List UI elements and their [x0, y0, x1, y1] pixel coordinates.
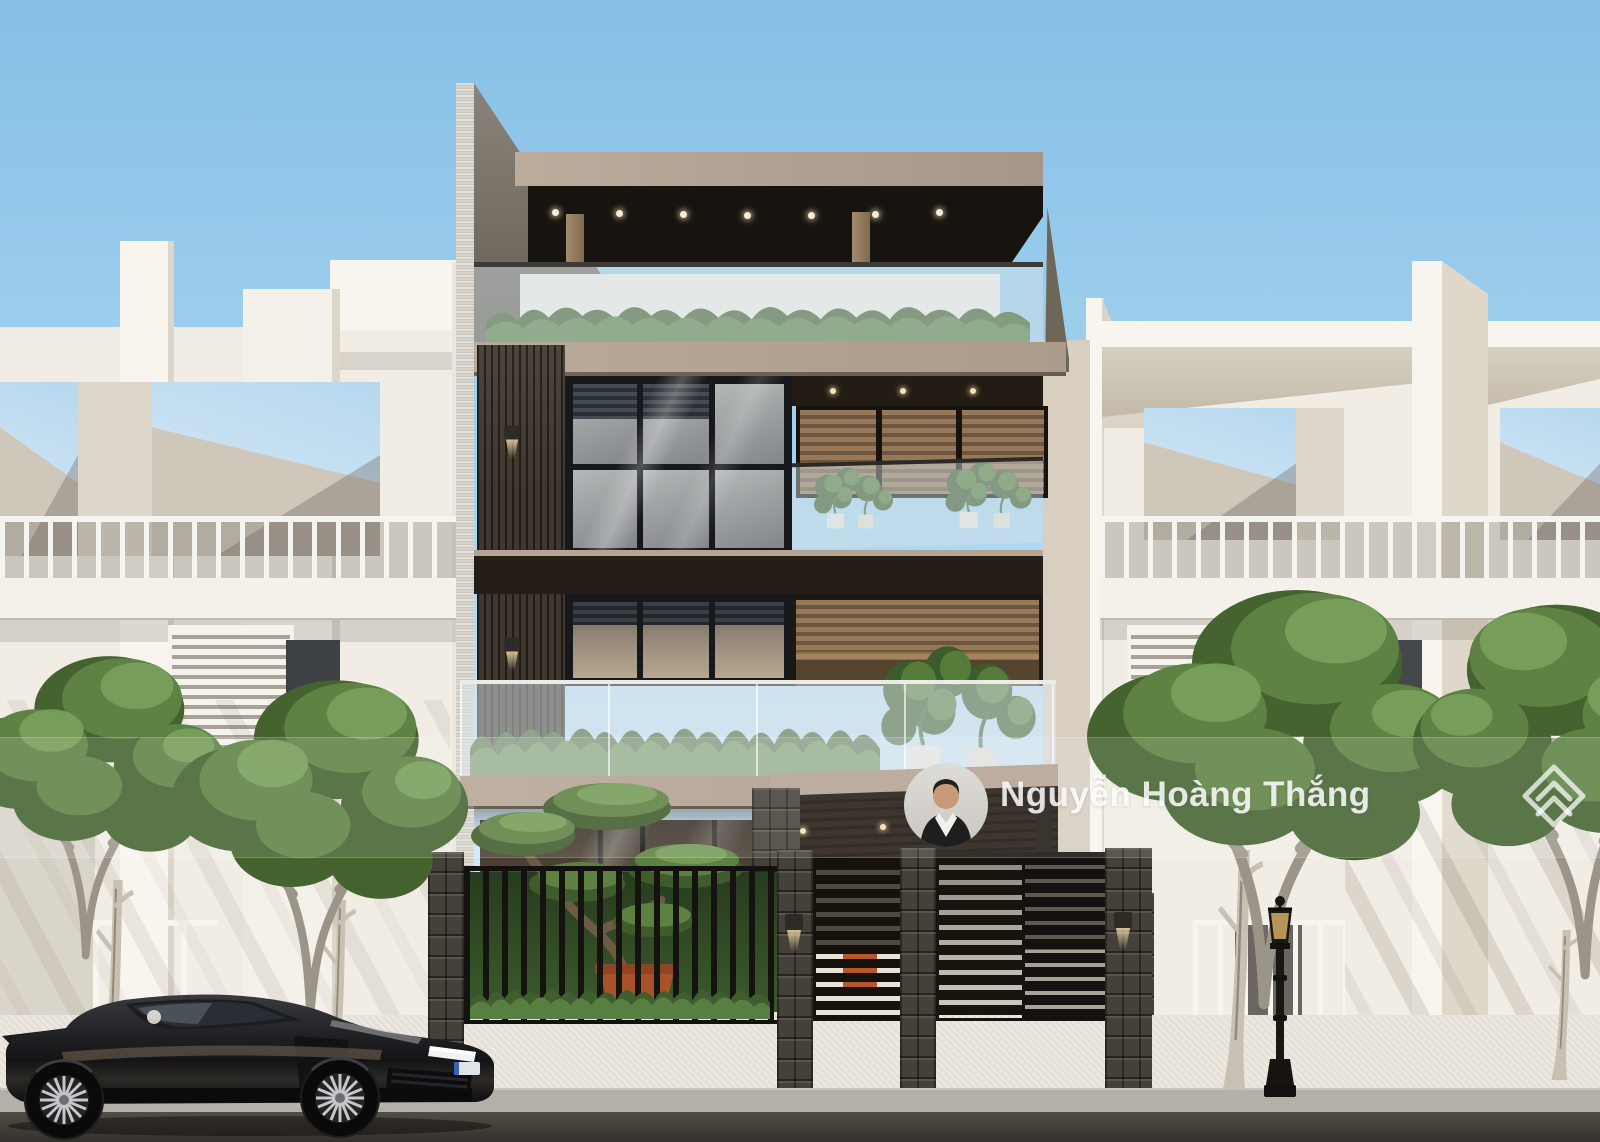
roof-terrace-glass-railing [474, 262, 1043, 347]
gate-pillar [777, 850, 813, 1088]
canopy-post [852, 212, 870, 264]
sports-car [2, 990, 502, 1140]
floor3-glass-balustrade [792, 457, 1043, 550]
watermark-agent-name: Nguyễn Hoàng Thắng [1000, 770, 1371, 820]
canopy-light [616, 210, 623, 217]
brand-diamond-logo-icon [1520, 762, 1588, 830]
wall-sconce-icon [502, 424, 522, 462]
canopy-light [744, 212, 751, 219]
canopy-light [808, 212, 815, 219]
floor2-slab-soffit [474, 556, 1043, 594]
agent-avatar-photo-icon [904, 763, 988, 847]
right-house-parapet-right [1488, 321, 1600, 347]
right-house-parapet-left [1102, 321, 1414, 347]
pillar-lamp-icon [783, 912, 805, 956]
listing-photo: Nguyễn Hoàng Thắng [0, 0, 1600, 1142]
window-pane [715, 602, 784, 678]
canopy-light [680, 211, 687, 218]
window-pane [573, 384, 637, 464]
window-pane [643, 602, 709, 678]
window-pane [715, 470, 784, 548]
ivy-over-wall [470, 975, 770, 1019]
canopy-post [566, 214, 584, 264]
ceiling-light [900, 388, 906, 394]
gate-b-slats [936, 852, 1028, 1021]
canopy-light [552, 209, 559, 216]
left-house-parapet-shadow [330, 352, 456, 370]
window-pane [715, 384, 784, 464]
gate-pillar [900, 848, 936, 1088]
street-lamp [1258, 895, 1302, 1107]
ceiling-light [970, 388, 976, 394]
window-pane [573, 602, 637, 678]
canopy-light [872, 211, 879, 218]
agent-avatar [904, 763, 988, 847]
canopy-light [936, 209, 943, 216]
wall-sconce-icon [502, 636, 522, 674]
window-pane [573, 470, 637, 548]
left-house-balcony-railing [0, 516, 474, 584]
gate-a-slats [813, 858, 906, 1021]
window-pane [643, 384, 709, 464]
ceiling-light [830, 388, 836, 394]
roof-canopy-soffit [528, 186, 1043, 262]
roof-canopy-fascia [515, 152, 1043, 186]
left-house-slab [0, 578, 474, 620]
window-pane [643, 470, 709, 548]
